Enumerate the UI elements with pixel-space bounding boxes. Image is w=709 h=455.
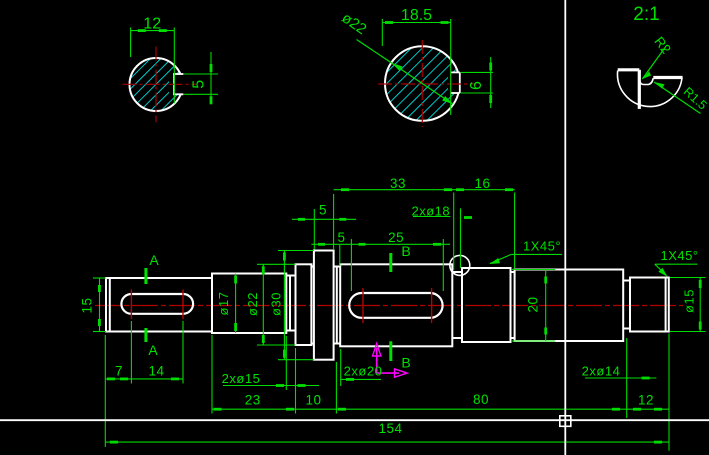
svg-text:B: B — [401, 355, 410, 371]
svg-text:16: 16 — [474, 176, 490, 191]
svg-text:ø17: ø17 — [216, 292, 231, 316]
svg-text:A: A — [149, 252, 159, 268]
svg-text:A: A — [148, 342, 158, 358]
svg-text:7: 7 — [115, 364, 123, 379]
svg-text:ø30: ø30 — [268, 292, 283, 316]
svg-text:80: 80 — [473, 392, 489, 407]
svg-text:ø15: ø15 — [682, 289, 697, 313]
svg-text:15: 15 — [80, 297, 95, 313]
svg-text:ø22: ø22 — [245, 292, 260, 316]
svg-text:1X45°: 1X45° — [660, 248, 698, 263]
svg-text:2xø15: 2xø15 — [222, 371, 261, 386]
svg-text:1X45°: 1X45° — [523, 239, 561, 254]
svg-text:23: 23 — [245, 393, 261, 408]
svg-text:20: 20 — [526, 296, 541, 312]
svg-text:B: B — [401, 243, 410, 259]
svg-text:12: 12 — [638, 393, 654, 408]
svg-text:14: 14 — [148, 364, 164, 379]
svg-text:33: 33 — [390, 176, 406, 191]
svg-text:12: 12 — [143, 16, 161, 33]
svg-text:5: 5 — [319, 203, 327, 218]
svg-text:18.5: 18.5 — [401, 7, 432, 24]
svg-text:5: 5 — [337, 230, 345, 245]
svg-text:25: 25 — [388, 230, 404, 245]
svg-text:2xø20: 2xø20 — [344, 364, 383, 379]
svg-text:2xø18: 2xø18 — [411, 204, 450, 219]
svg-text:154: 154 — [378, 421, 402, 436]
svg-text:5: 5 — [191, 80, 208, 89]
svg-text:2:1: 2:1 — [633, 4, 659, 25]
svg-text:10: 10 — [305, 393, 321, 408]
svg-text:6: 6 — [468, 81, 485, 90]
svg-text:2xø14: 2xø14 — [582, 364, 621, 379]
